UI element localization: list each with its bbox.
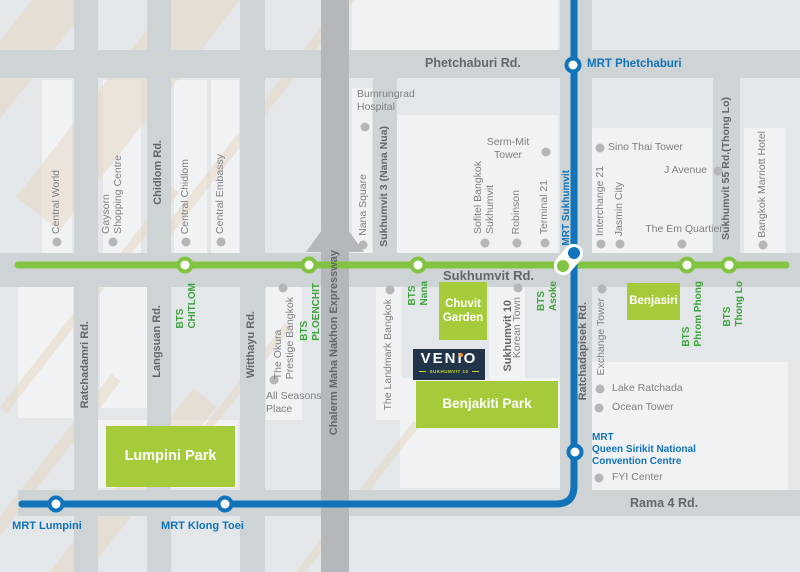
bumrungrad-dot — [361, 123, 370, 132]
mrt-klong-toei-label: MRT Klong Toei — [160, 520, 245, 533]
sukhumvit55-road-label: Sukhumvit 55 Rd.(Thong Lo) — [720, 97, 732, 240]
bts-ploenchit-station — [301, 257, 318, 274]
expressway-arrow-left-wing — [306, 230, 322, 252]
em-quartier-dot — [678, 240, 687, 249]
langsuan-road-label: Langsuan Rd. — [151, 305, 164, 378]
okura-dot — [279, 284, 288, 293]
korean-town-dot — [514, 284, 523, 293]
witthayu-road-label: Witthayu Rd. — [245, 311, 258, 378]
park-lumpini: Lumpini Park — [106, 426, 235, 487]
bts-phrom-phong-label: BTS Phrom Phong — [681, 281, 705, 347]
sukhumvit-road-label: Sukhumvit Rd. — [443, 268, 534, 283]
mrt-sukhumvit-station — [568, 247, 580, 259]
sukhumvit3-road-label: Sukhumvit 3 (Nana Nua) — [378, 126, 390, 247]
marriott-dot — [759, 241, 768, 250]
exchange-tower-label: Exchange Tower — [595, 298, 607, 375]
chidlom-road-label: Chidlom Rd. — [152, 140, 165, 205]
sofitel-label: Sofitel Bangkok Sukhumvit — [472, 161, 496, 234]
sino-thai-label: Sino Thai Tower — [608, 141, 683, 154]
serm-mit-dot — [542, 148, 551, 157]
terminal21-dot — [541, 239, 550, 248]
location-map: Chuvit Garden Benjasiri Benjakiti Park L… — [0, 0, 800, 572]
gaysorn-label: Gaysorn Shopping Centre — [100, 155, 124, 234]
venio-i-dot — [459, 353, 463, 357]
bts-chitlom-station — [177, 257, 194, 274]
mrt-lumpini-station — [48, 496, 65, 513]
mrt-phetchaburi-label: MRT Phetchaburi — [587, 58, 682, 72]
mrt-qsncc-label: MRT Queen Sirikit National Convention Ce… — [592, 432, 696, 467]
ocean-tower-dot — [595, 404, 604, 413]
park-benjakiti: Benjakiti Park — [416, 381, 558, 428]
all-seasons-label: All Seasons Place — [266, 390, 321, 415]
marriott-label: Bangkok Marriott Hotel — [756, 131, 768, 238]
sino-thai-dot — [596, 144, 605, 153]
venio-logo-subtitle: SUKHUMVIT 10 — [429, 369, 468, 374]
lake-ratchada-dot — [596, 385, 605, 394]
bumrungrad-label: Bumrungrad Hospital — [357, 88, 415, 113]
rama4-road-label: Rama 4 Rd. — [630, 496, 698, 510]
central-world-dot — [53, 238, 62, 247]
park-chuvit-garden: Chuvit Garden — [439, 282, 487, 340]
bts-nana-label: BTS Nana — [407, 281, 431, 305]
ratchadamri-road-label: Ratchadamri Rd. — [79, 321, 92, 408]
mrt-sukhumvit-label: MRT Sukhumvit — [561, 170, 573, 246]
jasmin-city-label: Jasmin City — [613, 182, 625, 236]
bts-chitlom-label: BTS CHITLOM — [175, 283, 199, 329]
em-quartier-label: The Em Quartier — [629, 223, 739, 236]
landmark-bangkok-dot — [386, 286, 395, 295]
gaysorn-dot — [109, 238, 118, 247]
nana-square-dot — [359, 241, 368, 250]
venio-logo-name: VENIO — [413, 351, 485, 368]
central-chidlom-dot — [182, 238, 191, 247]
jasmin-city-dot — [616, 240, 625, 249]
robinson-dot — [513, 239, 522, 248]
nana-square-label: Nana Square — [357, 174, 369, 236]
j-avenue-label: J Avenue — [664, 164, 707, 177]
fyi-center-label: FYI Center — [612, 471, 663, 484]
central-embassy-dot — [217, 238, 226, 247]
interchange21-label: Interchange 21 — [594, 166, 606, 236]
korean-town-label: Korean Town — [511, 297, 523, 358]
landmark-bangkok-label: The Landmark Bangkok — [382, 299, 394, 410]
okura-label: The Okura Prestige Bangkok — [272, 297, 296, 379]
bts-nana-station — [410, 257, 427, 274]
logo-left-bar — [419, 371, 426, 372]
ocean-tower-label: Ocean Tower — [612, 401, 674, 414]
mrt-blue-line — [22, 0, 574, 504]
bts-thong-lo-label: BTS Thong Lo — [722, 281, 746, 327]
robinson-label: Robinson — [510, 190, 522, 234]
bts-thong-lo-station — [721, 257, 738, 274]
park-benjasiri: Benjasiri — [627, 283, 680, 320]
expressway-label: Chalerm Maha Nakhon Expressway — [328, 250, 341, 435]
lake-ratchada-label: Lake Ratchada — [612, 382, 683, 395]
central-chidlom-label: Central Chidlom — [179, 159, 191, 234]
venio-logo: VENIO SUKHUMVIT 10 — [413, 349, 485, 380]
sofitel-dot — [481, 239, 490, 248]
phetchaburi-road-label: Phetchaburi Rd. — [425, 56, 521, 70]
interchange21-dot — [597, 240, 606, 249]
terminal21-label: Terminal 21 — [538, 180, 550, 234]
mrt-qsncc-station — [567, 444, 584, 461]
mrt-phetchaburi-station — [565, 57, 582, 74]
central-world-label: Central World — [50, 170, 62, 234]
ratchadapisek-road-label: Ratchadapisek Rd. — [577, 302, 590, 400]
serm-mit-label: Serm-Mit Tower — [478, 136, 538, 161]
exchange-tower-dot — [598, 285, 607, 294]
bts-asoke-station — [557, 260, 569, 272]
bts-ploenchit-label: BTS PLOENCHIT — [299, 283, 323, 341]
fyi-center-dot — [595, 474, 604, 483]
central-embassy-label: Central Embassy — [214, 154, 226, 234]
bts-phrom-phong-station — [679, 257, 696, 274]
mrt-lumpini-label: MRT Lumpini — [8, 520, 86, 533]
bts-asoke-label: BTS Asoke — [536, 281, 560, 311]
mrt-klong-toei-station — [217, 496, 234, 513]
logo-right-bar — [472, 371, 479, 372]
